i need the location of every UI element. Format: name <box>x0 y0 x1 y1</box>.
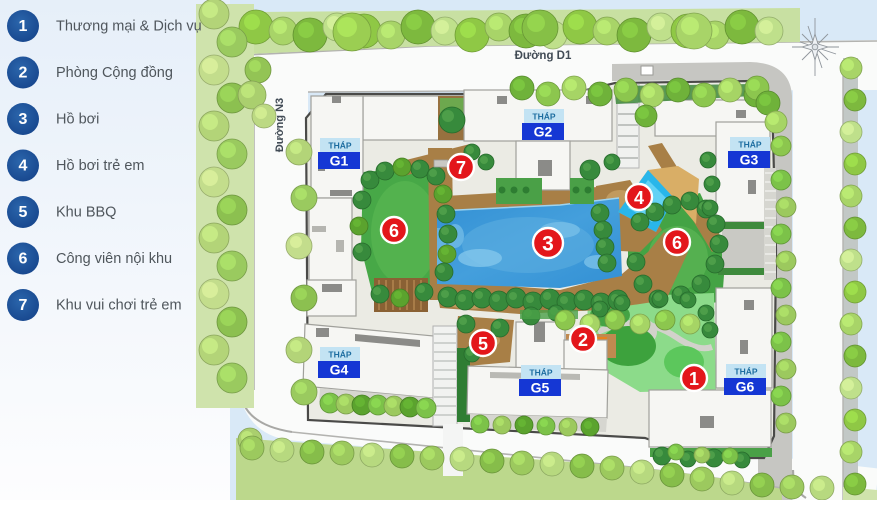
svg-text:Phòng Cộng đồng: Phòng Cộng đồng <box>56 65 173 81</box>
svg-text:Khu BBQ: Khu BBQ <box>56 205 116 221</box>
svg-text:G5: G5 <box>531 380 550 396</box>
svg-text:6: 6 <box>19 251 28 268</box>
svg-text:4: 4 <box>634 188 644 208</box>
svg-text:G3: G3 <box>740 152 759 168</box>
svg-text:Hồ bơi: Hồ bơi <box>56 112 99 128</box>
svg-text:Đường D1: Đường D1 <box>515 50 572 62</box>
svg-text:Đường N3: Đường N3 <box>274 98 286 152</box>
svg-text:G2: G2 <box>534 124 553 140</box>
svg-text:THÁP: THÁP <box>529 368 552 378</box>
svg-text:2: 2 <box>578 330 588 350</box>
svg-text:7: 7 <box>19 297 28 314</box>
svg-text:6: 6 <box>389 221 399 241</box>
svg-text:Hồ bơi trẻ em: Hồ bơi trẻ em <box>56 158 144 174</box>
svg-text:5: 5 <box>478 334 488 354</box>
svg-text:G4: G4 <box>330 362 349 378</box>
svg-text:THÁP: THÁP <box>734 367 757 377</box>
svg-text:4: 4 <box>19 158 28 175</box>
svg-text:G6: G6 <box>736 379 755 395</box>
svg-text:Công viên nội khu: Công viên nội khu <box>56 251 172 267</box>
svg-text:1: 1 <box>19 18 28 35</box>
svg-text:Khu vui chơi trẻ em: Khu vui chơi trẻ em <box>56 298 182 314</box>
svg-text:3: 3 <box>19 111 28 128</box>
svg-text:THÁP: THÁP <box>328 350 351 360</box>
svg-text:G1: G1 <box>330 153 349 169</box>
svg-text:6: 6 <box>672 233 682 253</box>
svg-text:7: 7 <box>456 158 466 178</box>
svg-text:THÁP: THÁP <box>328 141 351 151</box>
svg-text:THÁP: THÁP <box>738 140 761 150</box>
svg-text:THÁP: THÁP <box>532 112 555 122</box>
svg-text:3: 3 <box>542 233 554 256</box>
svg-text:5: 5 <box>19 204 28 221</box>
svg-text:1: 1 <box>689 369 699 389</box>
svg-text:2: 2 <box>19 65 28 82</box>
svg-text:Thương mại & Dịch vụ: Thương mại & Dịch vụ <box>56 19 202 35</box>
